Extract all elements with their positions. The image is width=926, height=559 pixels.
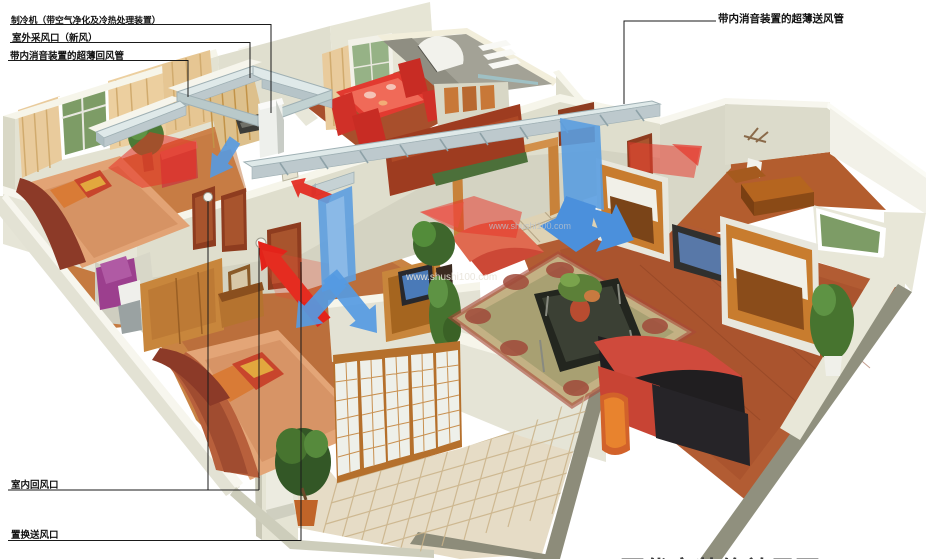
svg-text:室内回风口: 室内回风口 — [11, 479, 59, 491]
svg-text:室外采风口（新风）: 室外采风口（新风） — [12, 32, 98, 44]
svg-text:www.shushi100.com: www.shushi100.com — [405, 272, 497, 283]
svg-text:带内消音装置的超薄回风管: 带内消音装置的超薄回风管 — [10, 50, 125, 62]
svg-text:置换送风口: 置换送风口 — [11, 529, 59, 541]
svg-text:制冷机（带空气净化及冷热处理装置）: 制冷机（带空气净化及冷热处理装置） — [11, 14, 161, 25]
svg-text:带内消音装置的超薄送风管: 带内消音装置的超薄送风管 — [718, 12, 844, 25]
svg-text:www.shushi100.com: www.shushi100.com — [488, 221, 571, 231]
